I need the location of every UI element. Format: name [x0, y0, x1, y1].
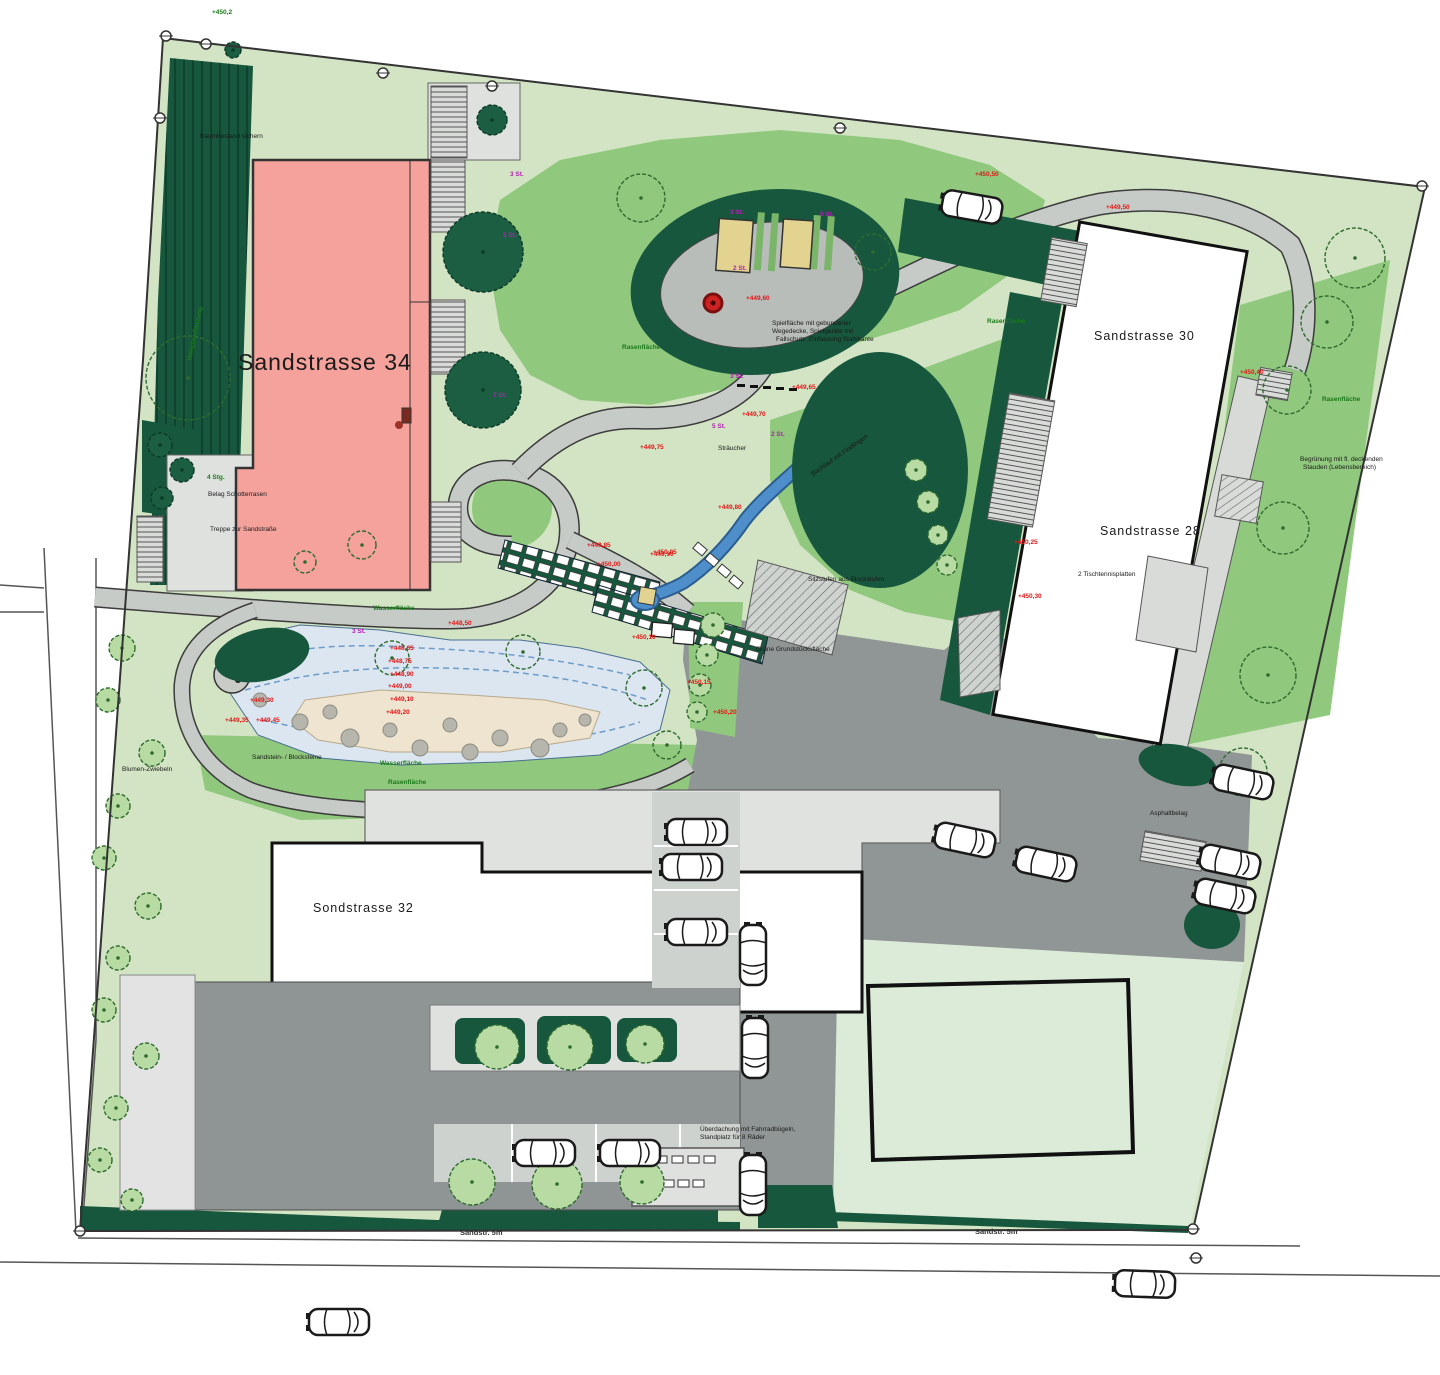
car-symbol [664, 819, 727, 845]
tree-symbol [96, 688, 120, 712]
stone [579, 714, 591, 726]
tree-symbol [701, 613, 725, 637]
tree-symbol [917, 491, 939, 513]
tree-symbol [477, 105, 507, 135]
tree-symbol [170, 458, 194, 482]
tree-symbol [937, 555, 957, 575]
stone [531, 739, 549, 757]
stone [292, 714, 308, 730]
stone [412, 740, 428, 756]
tree-symbol [104, 1096, 128, 1120]
field-rectangle [868, 980, 1133, 1160]
tree-symbol [905, 459, 927, 481]
car-symbol [659, 854, 722, 880]
tree-symbol [88, 1148, 112, 1172]
tree-symbol [133, 1043, 159, 1069]
tree-symbol [626, 1025, 664, 1063]
tree-symbol [445, 352, 521, 428]
tree-symbol [475, 1025, 519, 1069]
tree-symbol [92, 846, 116, 870]
stone [462, 744, 478, 760]
car-symbol [740, 1152, 766, 1215]
stone [253, 693, 267, 707]
left-street [0, 548, 96, 1232]
bottom-street [0, 1238, 1440, 1276]
car-symbol [742, 1015, 768, 1078]
stone [341, 729, 359, 747]
tree-symbol [139, 740, 165, 766]
tree-symbol [148, 433, 172, 457]
tree-symbol [135, 893, 161, 919]
stone [383, 723, 397, 737]
tree-symbol [121, 1189, 143, 1211]
car-symbol [740, 922, 766, 985]
stone [443, 718, 457, 732]
tree-symbol [151, 487, 173, 509]
stone [492, 730, 508, 746]
tree-symbol [443, 212, 523, 292]
site-plan-drawing [0, 0, 1440, 1375]
porch-28 [1136, 556, 1208, 652]
car-symbol [664, 919, 727, 945]
site-plan: Sandstrasse 34 Sandstrasse 30 Sandstrass… [0, 0, 1440, 1375]
yard-light-strip [120, 975, 195, 1210]
tree-symbol [449, 1159, 495, 1205]
stone [553, 723, 567, 737]
tree-symbol [106, 946, 130, 970]
car-symbol [512, 1140, 575, 1166]
tree-symbol [687, 702, 707, 722]
tree-symbol [689, 674, 711, 696]
car-symbol [597, 1140, 660, 1166]
survey-marker [1189, 1253, 1203, 1263]
car-symbol [306, 1309, 369, 1335]
tree-symbol [928, 525, 948, 545]
tree-symbol [547, 1024, 593, 1070]
building-sandstrasse-34 [236, 160, 430, 590]
tree-symbol [225, 42, 241, 58]
stone [323, 705, 337, 719]
car-symbol [1112, 1270, 1176, 1298]
tree-symbol [696, 644, 718, 666]
